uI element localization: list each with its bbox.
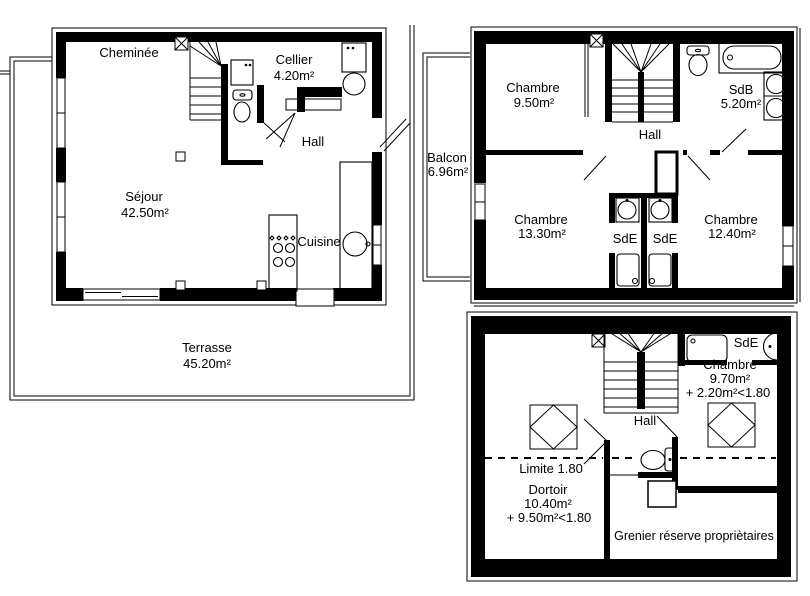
label-cellier-area: 4.20m²: [274, 68, 315, 83]
label-dortoir-area: 10.40m²: [524, 496, 572, 511]
label-dortoir-extra: + 9.50m²<1.80: [507, 510, 592, 525]
first-floor-plan: Chambre 9.50m² SdB 5.20m² Hall Balcon 6.…: [423, 27, 800, 306]
label-chambre-se: Chambre: [704, 212, 757, 227]
label-hall-ground: Hall: [302, 134, 325, 149]
label-sde-attic: SdE: [734, 335, 759, 350]
label-balcon: Balcon: [427, 150, 467, 165]
house-outline: [52, 28, 386, 305]
label-grenier: Grenier réserve propriètaires: [614, 529, 774, 543]
terrace-door: [296, 289, 334, 306]
label-sdb: SdB: [729, 82, 754, 97]
ground-floor-plan: Cheminée Cellier 4.20m² Hall Séjour 42.5…: [0, 25, 414, 400]
chimney-icon: [592, 334, 605, 347]
label-cuisine: Cuisine: [297, 234, 340, 249]
label-chambre-sw-area: 13.30m²: [518, 226, 566, 241]
label-chambre-nw-area: 9.50m²: [514, 95, 555, 110]
floor-plan-sheet: Cheminée Cellier 4.20m² Hall Séjour 42.5…: [0, 0, 810, 596]
label-terrasse: Terrasse: [182, 340, 232, 355]
label-chambre-attic: Chambre: [703, 357, 756, 372]
label-chambre-sw: Chambre: [514, 212, 567, 227]
label-cellier: Cellier: [276, 52, 314, 67]
chimney-icon: [175, 37, 188, 50]
label-chambre-attic-area: 9.70m²: [710, 371, 751, 386]
label-terrasse-area: 45.20m²: [183, 356, 231, 371]
label-sde-right: SdE: [653, 231, 678, 246]
label-cheminee: Cheminée: [99, 45, 158, 60]
attic-plan: SdE Chambre 9.70m² + 2.20m²<1.80 Hall Li…: [467, 312, 797, 581]
flue-box: [648, 481, 676, 507]
label-hall-first: Hall: [639, 127, 662, 142]
label-chambre-se-area: 12.40m²: [708, 226, 756, 241]
house-outline: [471, 27, 797, 303]
label-chambre-attic-extra: + 2.20m²<1.80: [686, 385, 771, 400]
label-sde-left: SdE: [613, 231, 638, 246]
label-dortoir: Dortoir: [528, 482, 568, 497]
label-sejour-area: 42.50m²: [121, 205, 169, 220]
hall-closet: [656, 152, 677, 194]
label-sejour: Séjour: [125, 189, 163, 204]
label-balcon-area: 6.96m²: [428, 164, 469, 179]
label-sdb-area: 5.20m²: [721, 96, 762, 111]
label-limite: Limite 1.80: [519, 461, 583, 476]
chimney-icon: [590, 34, 603, 47]
floor-plans-drawing: Cheminée Cellier 4.20m² Hall Séjour 42.5…: [0, 0, 810, 596]
label-hall-attic: Hall: [634, 413, 657, 428]
label-chambre-nw: Chambre: [506, 80, 559, 95]
